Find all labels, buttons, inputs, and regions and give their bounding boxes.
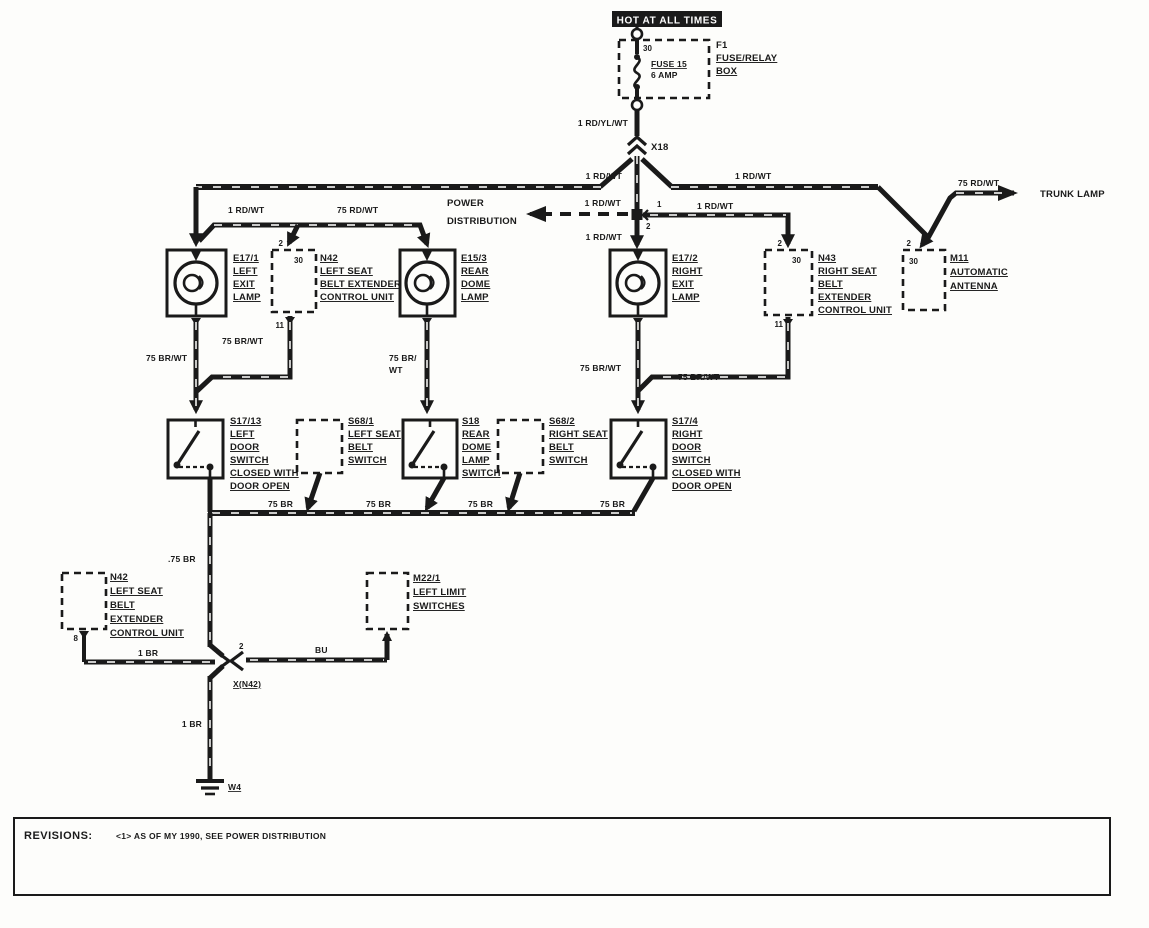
s68-2-line: RIGHT SEAT [549, 429, 608, 440]
s18-line: DOME [462, 442, 491, 453]
n42-top-pin-2: 2 [279, 239, 284, 248]
lamp-icon [617, 252, 659, 315]
e17-2-line: RIGHT [672, 266, 703, 277]
n43-id: N43 [818, 253, 836, 264]
wire-right-branch [878, 187, 928, 237]
s68-2-line: SWITCH [549, 455, 588, 466]
switch-icon [174, 420, 214, 478]
component-m22-1-box [367, 573, 408, 629]
power-distribution-label-2: DISTRIBUTION [447, 216, 517, 227]
ground-bus-label-1: 75 BR [268, 499, 293, 509]
wire-s68-1-drop [308, 473, 320, 508]
m11-line: AUTOMATIC [950, 267, 1008, 278]
wire-left-drop-label: 75 BR/WT [146, 353, 188, 363]
fuse-icon [634, 54, 640, 90]
e17-2-line: EXIT [672, 279, 694, 290]
component-s18-box [403, 420, 457, 478]
component-n42-bottom-box [62, 573, 106, 629]
lamp-icon [175, 252, 217, 315]
wire-right-drop-label: 75 BR/WT [580, 363, 622, 373]
s17-4-line: DOOR OPEN [672, 481, 732, 492]
s68-1-line: BELT [348, 442, 373, 453]
wire-n42-feed [289, 225, 298, 243]
ground-bus-label-2: 75 BR [366, 499, 391, 509]
wire-n43-drop-label: 75 BR/WT [678, 372, 720, 382]
e17-2-id: E17/2 [672, 253, 698, 264]
component-n43-box [765, 250, 812, 315]
wire-power-dist-label: 1 RD/WT [585, 198, 622, 208]
switch-icon [409, 420, 448, 478]
power-distribution-label-1: POWER [447, 198, 484, 209]
e15-3-line: LAMP [461, 292, 489, 303]
lamp-icon [406, 252, 448, 315]
m22-1-line: SWITCHES [413, 601, 465, 612]
e15-3-line: REAR [461, 266, 489, 277]
n42-bottom-id: N42 [110, 572, 128, 583]
s68-2-id: S68/2 [549, 416, 575, 427]
fuse-pin-30: 30 [643, 44, 652, 53]
s17-4-line: DOOR [672, 442, 701, 453]
n42-top-line: LEFT SEAT [320, 266, 373, 277]
n42-bottom-pin-8: 8 [74, 634, 79, 643]
s17-13-line: DOOR [230, 442, 259, 453]
e17-1-line: EXIT [233, 279, 255, 290]
connector-xn42-pin: 2 [239, 642, 244, 651]
s18-line: REAR [462, 429, 490, 440]
wire-s17-4-drop [634, 478, 653, 511]
junction-dot [632, 209, 643, 220]
connector-x18-icon [628, 137, 646, 154]
wire-n43-feed [643, 215, 788, 244]
component-s68-2-box [498, 420, 543, 473]
n42-bottom-line: LEFT SEAT [110, 586, 163, 597]
e17-1-line: LAMP [233, 292, 261, 303]
wire-bus-left-label: 1 RD/WT [586, 171, 623, 181]
e17-1-line: LEFT [233, 266, 258, 277]
m11-pin-2: 2 [907, 239, 912, 248]
component-s17-4-box [611, 420, 666, 478]
s17-13-id: S17/13 [230, 416, 261, 427]
fuse-relay-box [619, 40, 709, 98]
s17-4-line: RIGHT [672, 429, 703, 440]
e17-2-line: LAMP [672, 292, 700, 303]
n43-terminal-30: 30 [792, 256, 801, 265]
wire-sub-bus [199, 225, 427, 244]
n42-bottom-line: BELT [110, 600, 135, 611]
s17-13-line: SWITCH [230, 455, 269, 466]
n43-line: CONTROL UNIT [818, 305, 892, 316]
wire-n42-drop-label: 75 BR/WT [222, 336, 264, 346]
connector-xn42-label: X(N42) [233, 679, 261, 689]
fuse-name: FUSE 15 [651, 59, 687, 69]
wire-n43-feed-label: 1 RD/WT [697, 201, 734, 211]
s17-4-id: S17/4 [672, 416, 698, 427]
s68-1-line: SWITCH [348, 455, 387, 466]
s18-id: S18 [462, 416, 480, 427]
s68-1-line: LEFT SEAT [348, 429, 401, 440]
m11-terminal-30: 30 [909, 257, 918, 266]
s17-13-line: CLOSED WITH [230, 468, 299, 479]
wire-limit-switch-label: BU [315, 645, 328, 655]
junction-pin-1: 1 [657, 200, 662, 209]
n42-top-line: BELT EXTENDER [320, 279, 401, 290]
revisions-note: <1> AS OF MY 1990, SEE POWER DISTRIBUTIO… [116, 831, 326, 841]
terminal-top-icon [632, 29, 642, 39]
component-s68-1-box [297, 420, 342, 473]
trunk-lamp-destination: TRUNK LAMP [1040, 189, 1105, 200]
m11-line: ANTENNA [950, 281, 998, 292]
wire-trunk-label: 75 RD/WT [958, 178, 1000, 188]
s18-line: LAMP [462, 455, 490, 466]
e15-3-id: E15/3 [461, 253, 487, 264]
n43-pin-11: 11 [775, 320, 784, 329]
wire-bus-right-label: 1 RD/WT [735, 171, 772, 181]
hot-at-all-times-label: HOT AT ALL TIMES [617, 16, 718, 27]
s17-4-line: CLOSED WITH [672, 468, 741, 479]
wire-mid-drop-label-1: 75 BR/ [389, 353, 417, 363]
s68-2-line: BELT [549, 442, 574, 453]
terminal-bottom-icon [632, 100, 642, 110]
wire-main-ground-label: 1 BR [182, 719, 202, 729]
ground-point-label: W4 [228, 782, 241, 792]
fuse-box-name-1: FUSE/RELAY [716, 53, 778, 64]
n43-line: RIGHT SEAT [818, 266, 877, 277]
connector-x18-label: X18 [651, 142, 669, 153]
ground-bus-label-4: 75 BR [600, 499, 625, 509]
n42-top-pin-11: 11 [276, 321, 285, 330]
wire-n42-ground-label: 1 BR [138, 648, 158, 658]
e15-3-line: DOME [461, 279, 490, 290]
wire-sub-left-label: 1 RD/WT [228, 205, 265, 215]
n42-bottom-line: CONTROL UNIT [110, 628, 184, 639]
n42-top-id: N42 [320, 253, 338, 264]
n43-line: BELT [818, 279, 843, 290]
s17-13-line: LEFT [230, 429, 255, 440]
switch-icon [617, 420, 657, 478]
wiring-diagram: HOT AT ALL TIMES 30 FUSE 15 6 AMP F1 FUS… [0, 0, 1149, 928]
m11-id: M11 [950, 253, 969, 264]
wire-s18-drop [427, 478, 444, 508]
n42-bottom-line: EXTENDER [110, 614, 163, 625]
wire-s68-2-drop [509, 473, 520, 508]
revisions-label: REVISIONS: [24, 830, 93, 842]
wire-mid-drop-label-2: WT [389, 365, 403, 375]
s18-line: SWITCH [462, 468, 501, 479]
revisions-box [14, 818, 1110, 895]
junction-pin-2: 2 [646, 222, 651, 231]
s68-1-id: S68/1 [348, 416, 374, 427]
m22-1-id: M22/1 [413, 573, 441, 584]
n42-top-line: CONTROL UNIT [320, 292, 394, 303]
n42-top-terminal-30: 30 [294, 256, 303, 265]
fuse-box-name-2: BOX [716, 66, 738, 77]
wire-m11-feed [922, 237, 928, 245]
wire-bus-right-diag [642, 159, 672, 187]
wire-e17-2-feed-label: 1 RD/WT [586, 232, 623, 242]
m22-1-line: LEFT LIMIT [413, 587, 466, 598]
fuse-box-id: F1 [716, 40, 728, 51]
wire-trunk [928, 193, 1014, 238]
s17-13-line: DOOR OPEN [230, 481, 290, 492]
ground-icon [196, 781, 224, 794]
wire-feed-label: 1 RD/YL/WT [578, 118, 629, 128]
wire-sub-right-label: 75 RD/WT [337, 205, 379, 215]
wiring-diagram-page: HOT AT ALL TIMES 30 FUSE 15 6 AMP F1 FUS… [0, 0, 1149, 928]
component-s17-13-box [168, 420, 223, 478]
wire-down-left-label: .75 BR [168, 554, 196, 564]
fuse-rating: 6 AMP [651, 70, 678, 80]
ground-bus-label-3: 75 BR [468, 499, 493, 509]
n43-pin-2: 2 [778, 239, 783, 248]
s17-4-line: SWITCH [672, 455, 711, 466]
n43-line: EXTENDER [818, 292, 871, 303]
e17-1-id: E17/1 [233, 253, 259, 264]
